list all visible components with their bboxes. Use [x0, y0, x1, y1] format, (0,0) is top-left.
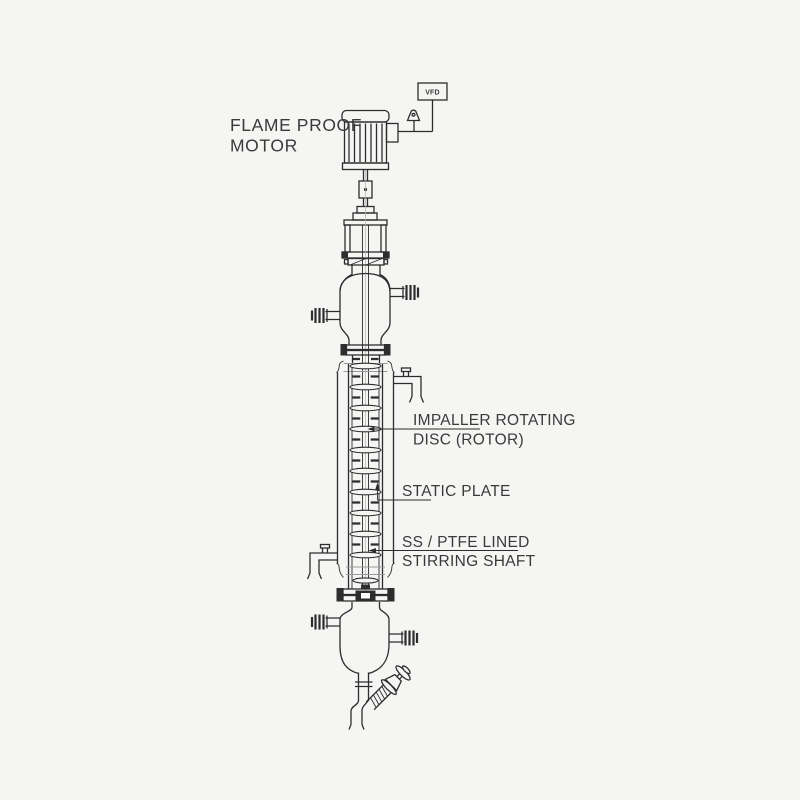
- bottom-vessel-left-nozzle: [312, 615, 341, 630]
- rotor-disc: [350, 489, 381, 495]
- rotor-label-line1: IMPALLER ROTATING: [413, 412, 576, 429]
- top-vessel-flange: [345, 259, 388, 266]
- top-vessel: [312, 259, 418, 346]
- bell-symbol: [408, 110, 420, 131]
- flange-clamp: [384, 344, 391, 356]
- jacket-bottom-nozzle: [308, 545, 338, 580]
- bottom-vessel: [312, 602, 417, 701]
- label-static-plate: STATIC PLATE: [375, 483, 511, 501]
- rotor-disc: [350, 552, 381, 558]
- jacket-bottom-curl: [337, 563, 344, 578]
- flange-clamp: [388, 588, 395, 602]
- jacket-top-curl: [337, 361, 344, 373]
- top-vessel-left-nozzle: [312, 308, 341, 323]
- vfd-label: VFD: [425, 90, 440, 97]
- rotor-disc: [350, 405, 381, 411]
- rotor-disc: [350, 363, 381, 369]
- static-plate-label: STATIC PLATE: [402, 483, 511, 500]
- drain-pipe: [351, 699, 369, 725]
- label-flame-proof-motor: FLAME PROOF MOTOR: [230, 115, 362, 156]
- rotor-disc: [350, 531, 381, 537]
- flange-clamp: [337, 588, 344, 602]
- top-vessel-right-nozzle: [390, 285, 419, 300]
- housing-left-column: [345, 225, 350, 252]
- column-bottom-flange: [337, 585, 395, 602]
- vfd-controller: VFD: [399, 83, 448, 132]
- shaft-label-line1: SS / PTFE LINED: [402, 534, 530, 551]
- jacket-bottom-curl: [388, 563, 395, 578]
- vfd-signal-line: [399, 100, 433, 132]
- flange-clamp: [341, 344, 348, 356]
- rotor-disc: [353, 578, 378, 583]
- process-diagram: VFD FLAME PROOF MOTOR: [0, 0, 800, 800]
- motor-label-line1: FLAME PROOF: [230, 115, 362, 135]
- rotor-disc: [350, 510, 381, 516]
- housing-right-column: [381, 225, 386, 252]
- motor-base: [343, 163, 389, 170]
- label-rotor-disc: IMPALLER ROTATING DISC (ROTOR): [368, 412, 576, 449]
- motor-label-line2: MOTOR: [230, 136, 298, 156]
- shaft-label-line2: STIRRING SHAFT: [402, 553, 536, 570]
- bottom-vessel-right-nozzle: [389, 631, 418, 646]
- rotor-disc: [350, 384, 381, 390]
- rotor-disc: [350, 468, 381, 474]
- rotor-label-line2: DISC (ROTOR): [413, 432, 524, 449]
- jacket-top-nozzle: [394, 368, 424, 403]
- rotor-disc: [350, 447, 381, 453]
- motor-terminal-box: [387, 124, 399, 143]
- jacket-top-curl: [388, 361, 395, 373]
